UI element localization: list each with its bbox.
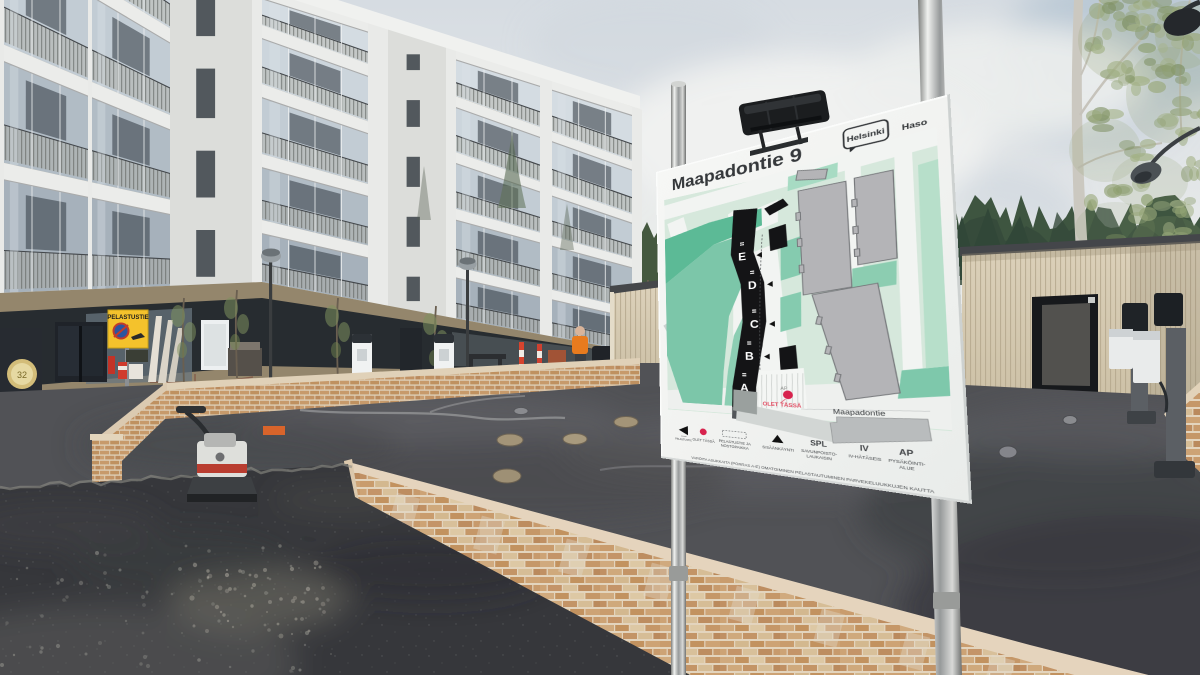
svg-text:B: B xyxy=(745,349,754,363)
svg-text:PELASTUSTIE: PELASTUSTIE xyxy=(107,315,148,321)
svg-text:D: D xyxy=(748,278,757,292)
svg-text:IV: IV xyxy=(860,444,870,454)
svg-text:SPL: SPL xyxy=(810,439,828,449)
svg-text:32: 32 xyxy=(17,370,27,380)
svg-text:E: E xyxy=(738,249,746,263)
svg-text:AP: AP xyxy=(899,447,914,458)
svg-text:C: C xyxy=(750,317,761,331)
